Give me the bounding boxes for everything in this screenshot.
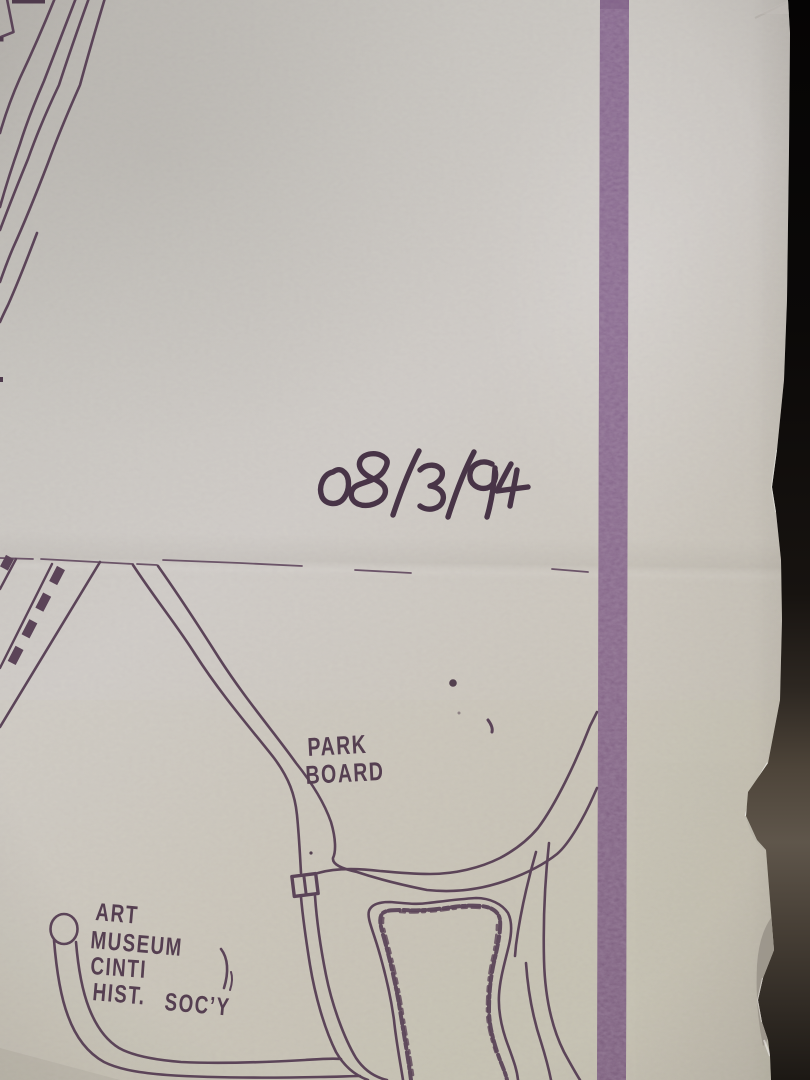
svg-text:HIST.: HIST. xyxy=(92,977,148,1010)
svg-text:BOARD: BOARD xyxy=(305,756,385,790)
svg-text:ART: ART xyxy=(95,897,140,929)
svg-text:SOC’Y: SOC’Y xyxy=(164,987,232,1021)
